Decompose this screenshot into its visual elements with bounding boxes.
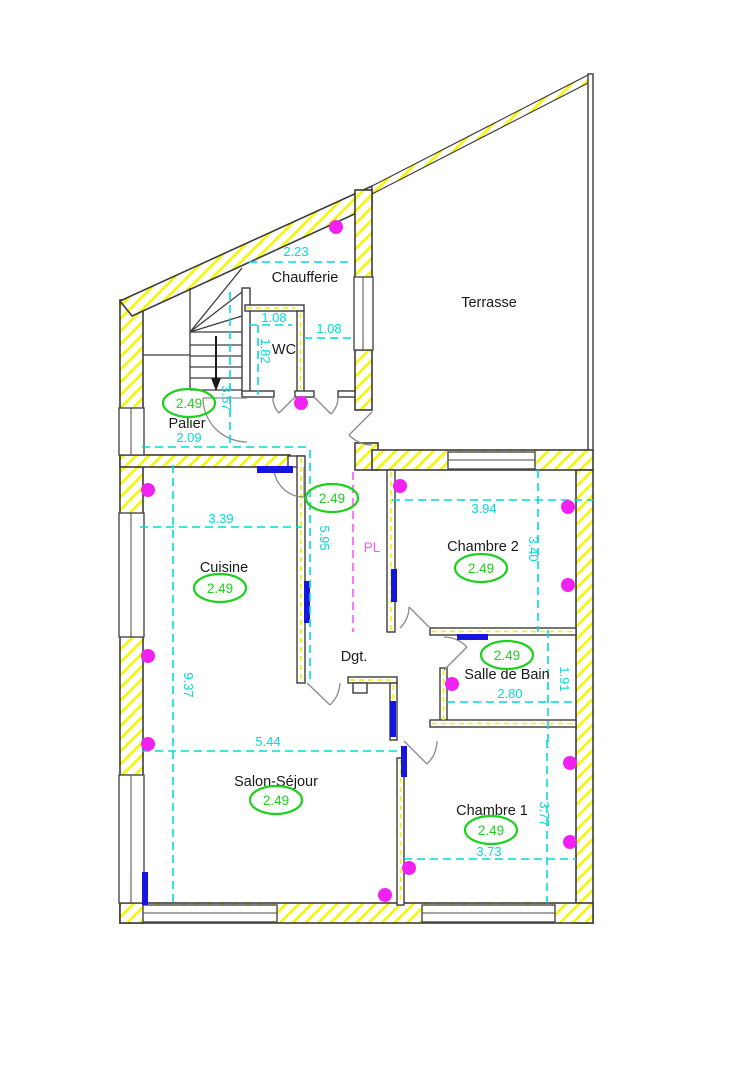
dimension-label-wc-depth: 1.82	[258, 338, 273, 363]
wall-terrace-west-upper	[355, 190, 372, 280]
exterior-walls	[120, 74, 593, 923]
radiator	[390, 701, 396, 737]
room-label-dgt: Dgt.	[341, 649, 368, 665]
height-badge-value: 2.49	[263, 793, 289, 808]
room-label-palier: Palier	[168, 416, 205, 432]
height-badge-cuisine: 2.49	[194, 574, 246, 602]
radiator	[304, 581, 310, 623]
wall-terrace-right	[588, 74, 593, 452]
height-badge-value: 2.49	[468, 561, 494, 576]
dimension-label-palier-width: 2.09	[176, 430, 201, 445]
closet-label: PL	[364, 540, 381, 555]
dimension-label-chambre1-depth: 3.77	[537, 801, 552, 826]
ceiling-light-dot	[141, 649, 155, 663]
ceiling-light-dot	[561, 578, 575, 592]
dimension-label-sdb-width: 2.80	[497, 686, 522, 701]
door-arc-chambre1	[427, 741, 437, 764]
ceiling-light-dot	[141, 737, 155, 751]
door-leaf-dgt	[307, 683, 330, 705]
dimension-label-cuisine-width: 3.39	[208, 511, 233, 526]
stair-winder-3	[190, 316, 242, 332]
room-label-wc: WC	[272, 342, 296, 358]
wall-palier-cuisine	[120, 455, 290, 467]
dimension-label-wc-width: 1.08	[261, 310, 286, 325]
floor-plan-page: 2.23 1.08 1.08 1.82 3.57 2.09 3.39 5.95 …	[0, 0, 742, 1080]
ceiling-light-dot	[563, 756, 577, 770]
wall-terrace-west-lower	[355, 350, 372, 410]
radiator	[257, 466, 293, 473]
height-badge-palier: 2.49	[163, 389, 215, 417]
height-badge-couloir: 2.49	[306, 484, 358, 512]
ceiling-light-dot	[329, 220, 343, 234]
door-leaf-chambre1	[404, 741, 427, 764]
height-badge-value: 2.49	[494, 648, 520, 663]
wall-vestibule-3	[338, 391, 355, 397]
ceiling-light-dot	[378, 888, 392, 902]
room-label-salon-sejour: Salon-Séjour	[234, 774, 318, 790]
height-badge-value: 2.49	[176, 396, 202, 411]
dimension-label-chaufferie-width: 2.23	[283, 244, 308, 259]
height-badge-salon-sejour: 2.49	[250, 786, 302, 814]
wall-sdb-left	[440, 668, 447, 723]
room-label-chambre2: Chambre 2	[447, 539, 519, 555]
wall-dgt-notch	[353, 683, 367, 693]
door-leaf-wc	[279, 397, 295, 413]
dimension-label-escalier: 3.57	[219, 385, 234, 410]
dimension-label-facade-gauche: 9.37	[181, 672, 196, 697]
radiator	[142, 872, 148, 905]
height-badge-value: 2.49	[207, 581, 233, 596]
door-arc-chambre2	[400, 607, 409, 628]
ceiling-light-dot	[445, 677, 459, 691]
door-leaf-chambre2	[409, 607, 430, 628]
dimension-label-couloir: 5.95	[317, 525, 332, 550]
door-leaf-chaufferie	[314, 397, 331, 414]
dimension-label-salon-width: 5.44	[255, 734, 280, 749]
dimension-label-chaufferie-passage: 1.08	[316, 321, 341, 336]
door-arc-wc	[273, 397, 279, 413]
door-arc-dgt	[330, 683, 340, 705]
ceiling-light-dot	[563, 835, 577, 849]
door-arc-chaufferie	[331, 397, 338, 414]
radiator	[401, 746, 407, 777]
wall-stair-east	[242, 288, 250, 395]
ceiling-light-dot	[294, 396, 308, 410]
wall-vestibule-2	[295, 391, 314, 397]
dimension-label-chambre1-width: 3.73	[476, 844, 501, 859]
radiator	[391, 569, 397, 602]
ceiling-light-dot	[561, 500, 575, 514]
height-badge-value: 2.49	[319, 491, 345, 506]
room-label-chaufferie: Chaufferie	[272, 270, 339, 286]
radiator	[457, 634, 488, 640]
floor-plan-drawing: 2.23 1.08 1.08 1.82 3.57 2.09 3.39 5.95 …	[0, 0, 742, 1080]
ceiling-light-dot	[141, 483, 155, 497]
dimension-label-chambre2-depth: 3.40	[526, 536, 541, 561]
dimension-label-chambre2-width: 3.94	[471, 501, 496, 516]
wall-terrace-parapet	[372, 74, 590, 194]
door-leaf-terrasse	[349, 412, 372, 435]
height-badge-chambre2: 2.49	[455, 554, 507, 582]
wall-right	[576, 470, 593, 923]
height-badge-value: 2.49	[478, 823, 504, 838]
dimension-label-sdb-depth: 1.91	[557, 666, 572, 691]
ceiling-light-dot	[402, 861, 416, 875]
stair-winder-2	[190, 292, 242, 332]
height-badge-chambre1: 2.49	[465, 816, 517, 844]
room-label-terrasse: Terrasse	[461, 295, 517, 311]
ceiling-light-dot	[393, 479, 407, 493]
height-badge-salle-de-bain: 2.49	[481, 641, 533, 669]
